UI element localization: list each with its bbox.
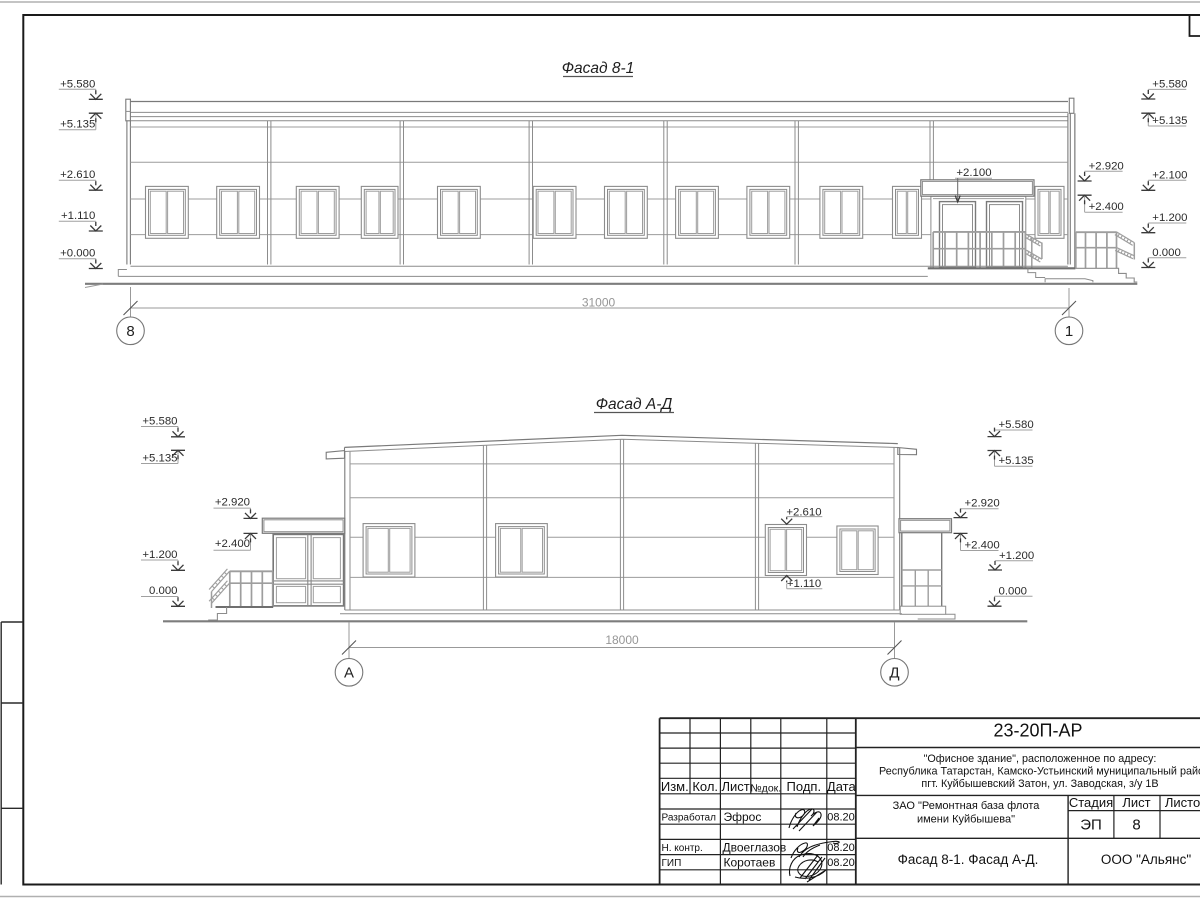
svg-text:+2.920: +2.920 bbox=[215, 497, 250, 509]
svg-text:Коротаев: Коротаев bbox=[724, 855, 776, 869]
svg-text:+5.135: +5.135 bbox=[1152, 115, 1187, 127]
svg-text:08.20: 08.20 bbox=[827, 842, 855, 854]
svg-text:+2.610: +2.610 bbox=[60, 169, 95, 181]
svg-text:+2.400: +2.400 bbox=[1089, 201, 1124, 213]
svg-text:имени Куйбышева": имени Куйбышева" bbox=[917, 814, 1015, 826]
svg-text:08.20: 08.20 bbox=[827, 857, 855, 869]
svg-text:Эфрос: Эфрос bbox=[724, 810, 762, 824]
svg-text:Республика Татарстан, Камско-У: Республика Татарстан, Камско-Устьинский … bbox=[879, 766, 1200, 778]
svg-text:08.20: 08.20 bbox=[827, 812, 855, 824]
svg-text:31000: 31000 bbox=[582, 295, 616, 309]
svg-text:+5.135: +5.135 bbox=[142, 453, 177, 465]
svg-text:ООО "Альянс": ООО "Альянс" bbox=[1101, 852, 1191, 867]
svg-text:18000: 18000 bbox=[605, 633, 639, 647]
svg-text:ЭП: ЭП bbox=[1080, 817, 1102, 834]
svg-text:пгт. Куйбышевский Затон, ул. З: пгт. Куйбышевский Затон, ул. Заводская, … bbox=[921, 778, 1158, 790]
svg-text:8: 8 bbox=[126, 323, 134, 340]
svg-text:+5.135: +5.135 bbox=[999, 455, 1034, 467]
svg-text:ГИП: ГИП bbox=[662, 858, 682, 869]
svg-text:+5.580: +5.580 bbox=[1152, 79, 1187, 91]
svg-text:Лист: Лист bbox=[1122, 795, 1150, 810]
svg-text:Листов: Листов bbox=[1165, 795, 1200, 810]
svg-text:Изм.: Изм. bbox=[661, 779, 689, 794]
svg-text:+5.580: +5.580 bbox=[999, 419, 1034, 431]
svg-text:Двоеглазов: Двоеглазов bbox=[723, 840, 787, 854]
svg-text:Фасад 8-1. Фасад А-Д.: Фасад 8-1. Фасад А-Д. bbox=[898, 852, 1039, 867]
svg-text:+2.920: +2.920 bbox=[1089, 160, 1124, 172]
svg-text:+1.110: +1.110 bbox=[61, 210, 95, 222]
svg-text:1: 1 bbox=[1065, 323, 1073, 340]
svg-text:Фасад 8-1: Фасад 8-1 bbox=[562, 60, 635, 77]
svg-text:23-20П-АР: 23-20П-АР bbox=[994, 721, 1083, 741]
svg-text:№док.: №док. bbox=[750, 783, 781, 795]
svg-text:Д: Д bbox=[889, 665, 899, 682]
svg-text:Разработал: Разработал bbox=[662, 811, 717, 823]
svg-text:+2.400: +2.400 bbox=[965, 540, 1000, 552]
svg-text:+2.920: +2.920 bbox=[965, 498, 1000, 510]
svg-text:0.000: 0.000 bbox=[1152, 247, 1181, 259]
svg-text:+2.100: +2.100 bbox=[956, 167, 991, 179]
svg-text:+0.000: +0.000 bbox=[60, 248, 95, 260]
svg-text:"Офисное здание", расположенно: "Офисное здание", расположенное по адрес… bbox=[924, 753, 1157, 765]
svg-text:0.000: 0.000 bbox=[999, 586, 1028, 598]
svg-text:ЗАО "Ремонтная база флота: ЗАО "Ремонтная база флота bbox=[893, 800, 1041, 812]
svg-text:+1.200: +1.200 bbox=[1152, 212, 1187, 224]
svg-text:+5.580: +5.580 bbox=[60, 79, 95, 91]
svg-text:0.000: 0.000 bbox=[149, 585, 178, 597]
svg-text:+5.580: +5.580 bbox=[142, 416, 177, 428]
svg-text:Стадия: Стадия bbox=[1069, 795, 1113, 810]
svg-text:Фасад А-Д: Фасад А-Д bbox=[596, 396, 673, 413]
svg-text:+2.400: +2.400 bbox=[215, 538, 250, 550]
svg-text:+2.100: +2.100 bbox=[1152, 169, 1187, 181]
svg-text:Н. контр.: Н. контр. bbox=[662, 843, 703, 854]
svg-text:Подп.: Подп. bbox=[787, 779, 822, 794]
svg-text:Дата: Дата bbox=[827, 779, 857, 794]
svg-text:+5.135: +5.135 bbox=[60, 119, 95, 131]
svg-text:А: А bbox=[344, 665, 354, 682]
svg-text:8: 8 bbox=[1132, 817, 1140, 834]
svg-text:Лист: Лист bbox=[721, 779, 749, 794]
svg-text:+1.200: +1.200 bbox=[142, 549, 177, 561]
svg-text:Кол.: Кол. bbox=[692, 779, 718, 794]
